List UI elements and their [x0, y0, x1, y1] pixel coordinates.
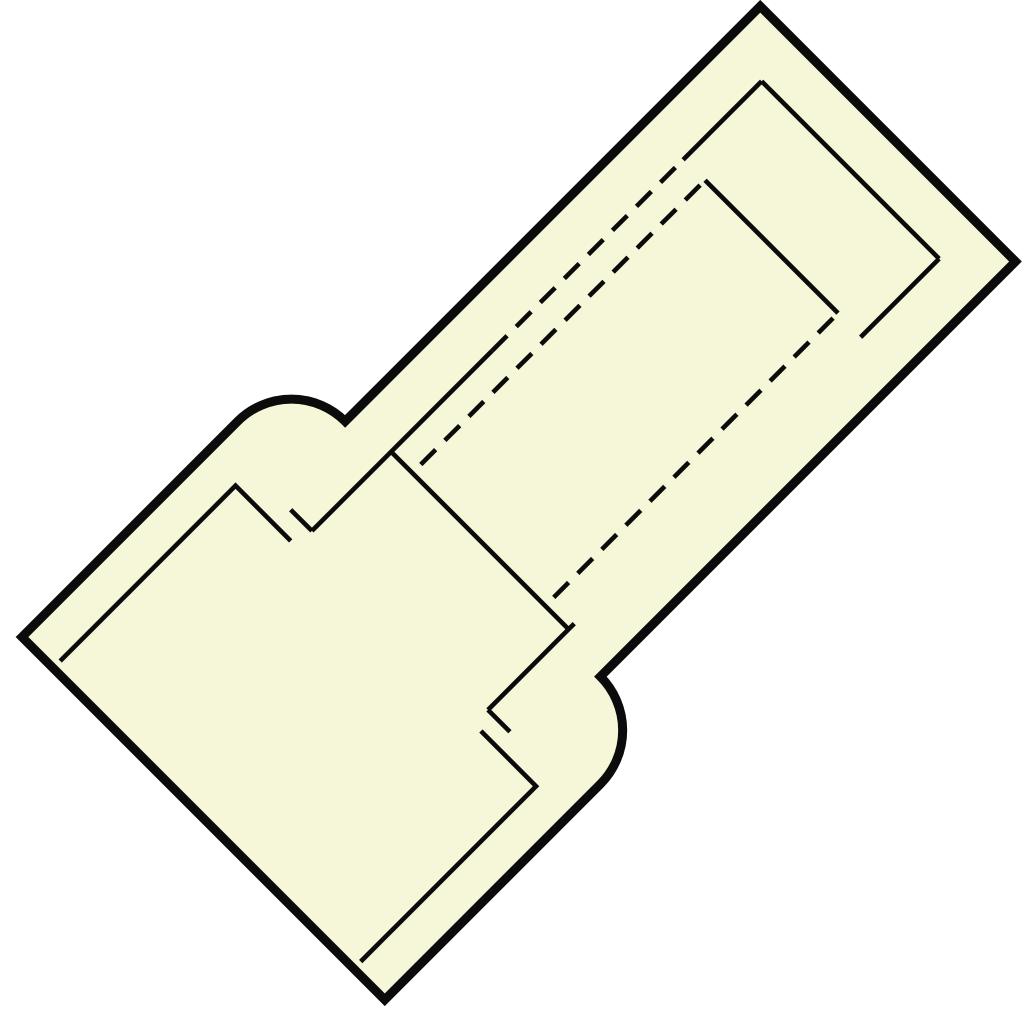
connector-body-outline [22, 0, 1024, 1000]
drawing-svg [0, 0, 1024, 1024]
connector-technical-drawing [0, 0, 1024, 1024]
rotated-drawing-group [22, 0, 1024, 1000]
